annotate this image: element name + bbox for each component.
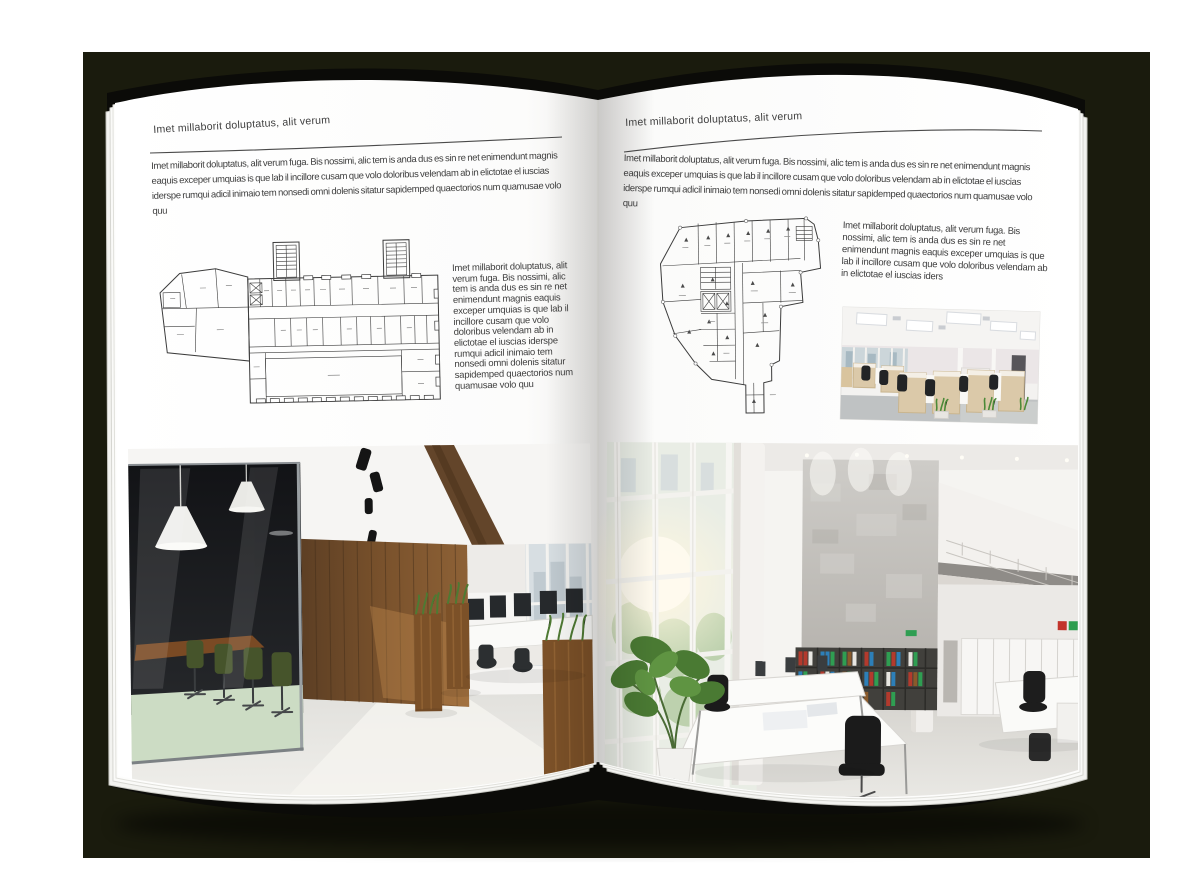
right-page-photo-small (840, 307, 1040, 424)
left-page-photo (128, 443, 594, 804)
left-page-intro-paragraph: Imet millaborit doluptatus, alit verum f… (151, 148, 568, 219)
right-page-intro-paragraph: Imet millaborit doluptatus, alit verum f… (623, 151, 1046, 221)
left-page-plan-side-text: Imet millaborit doluptatus, alit verum f… (452, 261, 581, 392)
magazine-mockup-scene: Imet millaborit doluptatus, alit verum I… (0, 0, 1200, 891)
right-page-side-paragraph: Imet millaborit doluptatus, alit verum f… (841, 220, 1051, 287)
